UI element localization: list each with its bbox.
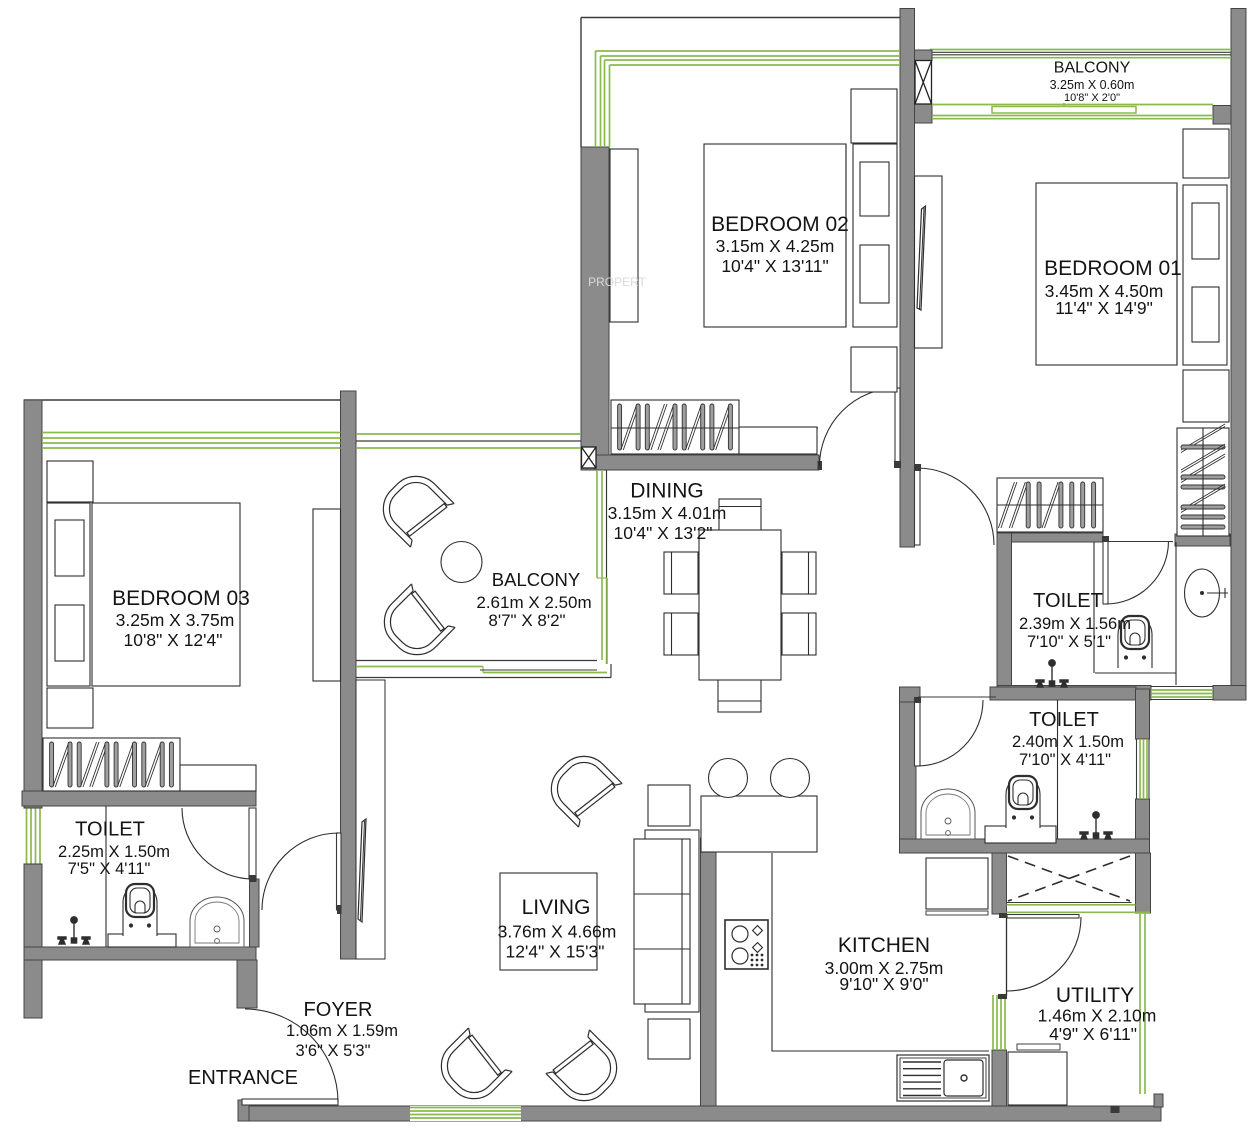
svg-text:3.25m X 3.75m: 3.25m X 3.75m: [116, 610, 235, 630]
svg-text:BALCONY: BALCONY: [492, 569, 580, 590]
svg-text:10'4" X 13'2": 10'4" X 13'2": [614, 523, 713, 543]
svg-text:3.15m X 4.25m: 3.15m X 4.25m: [716, 236, 835, 256]
svg-text:ENTRANCE: ENTRANCE: [188, 1067, 298, 1089]
svg-text:BEDROOM 03: BEDROOM 03: [112, 587, 250, 610]
svg-text:UTILITY: UTILITY: [1056, 984, 1134, 1007]
svg-text:TOILET: TOILET: [1033, 590, 1103, 612]
svg-text:3.76m X 4.66m: 3.76m X 4.66m: [498, 922, 617, 942]
svg-text:11'4" X 14'9": 11'4" X 14'9": [1055, 298, 1153, 318]
svg-text:BEDROOM 01: BEDROOM 01: [1044, 257, 1182, 280]
svg-text:7'5" X 4'11": 7'5" X 4'11": [68, 860, 151, 878]
svg-text:1.06m X 1.59m: 1.06m X 1.59m: [286, 1022, 398, 1040]
svg-text:4'9" X 6'11": 4'9" X 6'11": [1049, 1024, 1137, 1044]
svg-text:KITCHEN: KITCHEN: [838, 934, 930, 957]
svg-text:FOYER: FOYER: [304, 999, 373, 1021]
svg-text:PROPERT: PROPERT: [588, 275, 646, 289]
svg-text:2.40m X 1.50m: 2.40m X 1.50m: [1012, 733, 1124, 751]
svg-text:LIVING: LIVING: [522, 896, 591, 919]
svg-text:10'4" X 13'11": 10'4" X 13'11": [721, 256, 828, 276]
svg-text:3.25m X 0.60m: 3.25m X 0.60m: [1050, 78, 1135, 92]
svg-text:10'8" X 12'4": 10'8" X 12'4": [124, 630, 223, 650]
svg-text:DINING: DINING: [630, 480, 704, 503]
svg-text:TOILET: TOILET: [75, 819, 145, 841]
svg-text:10'8" X 2'0": 10'8" X 2'0": [1064, 92, 1120, 104]
svg-text:7'10" X 4'11": 7'10" X 4'11": [1019, 751, 1111, 769]
svg-text:12'4" X 15'3": 12'4" X 15'3": [506, 942, 605, 962]
svg-text:2.61m X 2.50m: 2.61m X 2.50m: [476, 593, 591, 612]
svg-text:3'6" X 5'3": 3'6" X 5'3": [296, 1042, 371, 1060]
svg-text:BALCONY: BALCONY: [1054, 60, 1131, 77]
svg-text:TOILET: TOILET: [1029, 709, 1099, 731]
svg-text:8'7" X 8'2": 8'7" X 8'2": [488, 611, 565, 630]
svg-text:1.46m X 2.10m: 1.46m X 2.10m: [1038, 1006, 1157, 1026]
svg-text:2.39m X 1.56m: 2.39m X 1.56m: [1019, 615, 1131, 633]
svg-text:7'10" X 5'1": 7'10" X 5'1": [1027, 633, 1111, 651]
svg-text:9'10" X 9'0": 9'10" X 9'0": [839, 974, 928, 994]
svg-text:3.15m X 4.01m: 3.15m X 4.01m: [608, 503, 727, 523]
svg-text:BEDROOM 02: BEDROOM 02: [711, 213, 849, 236]
svg-text:2.25m X 1.50m: 2.25m X 1.50m: [58, 843, 170, 861]
